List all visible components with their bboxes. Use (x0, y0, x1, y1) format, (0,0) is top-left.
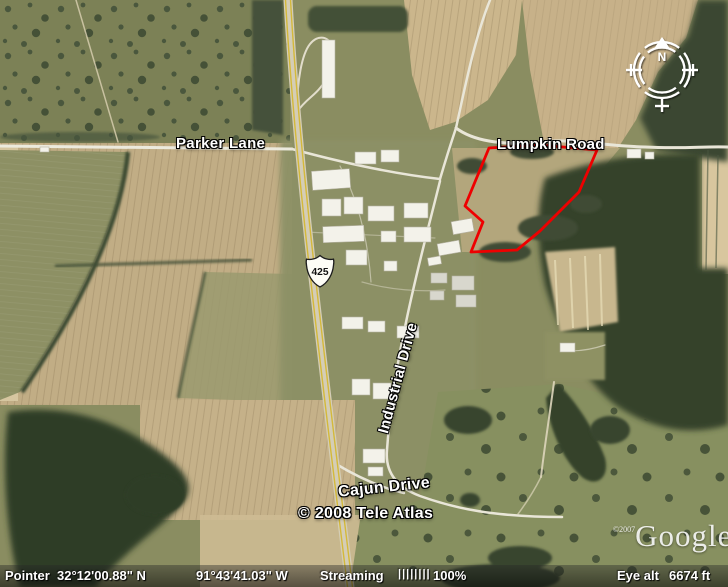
google-logo: Google (635, 518, 728, 553)
streaming-label: Streaming (320, 568, 384, 583)
route-shield-number: 425 (311, 267, 328, 278)
google-earth-viewport: Parker Lane Lumpkin Road Industrial Driv… (0, 0, 728, 587)
streaming-percent: 100% (433, 568, 466, 583)
pointer-label: Pointer (5, 568, 50, 583)
road-label-lumpkin-road: Lumpkin Road (497, 136, 605, 153)
road-label-parker-lane: Parker Lane (176, 135, 265, 152)
tele-atlas-credit: © 2008 Tele Atlas (298, 505, 433, 523)
eye-alt-value: 6674 ft (669, 568, 710, 583)
streaming-progress-bars: |||||||| (398, 568, 431, 580)
compass-rose-icon[interactable]: N (624, 30, 700, 116)
google-copyright-year: ©2007 (613, 525, 635, 534)
google-watermark: ©2007Google™ (613, 518, 728, 554)
status-bar: Pointer 32°12'00.88" N 91°43'41.03" W St… (0, 565, 728, 587)
pointer-longitude: 91°43'41.03" W (196, 568, 288, 583)
compass-north-label: N (658, 50, 667, 64)
eye-alt-label: Eye alt (617, 568, 659, 583)
route-425-shield-icon: 425 (303, 253, 337, 289)
pointer-latitude: 32°12'00.88" N (57, 568, 146, 583)
